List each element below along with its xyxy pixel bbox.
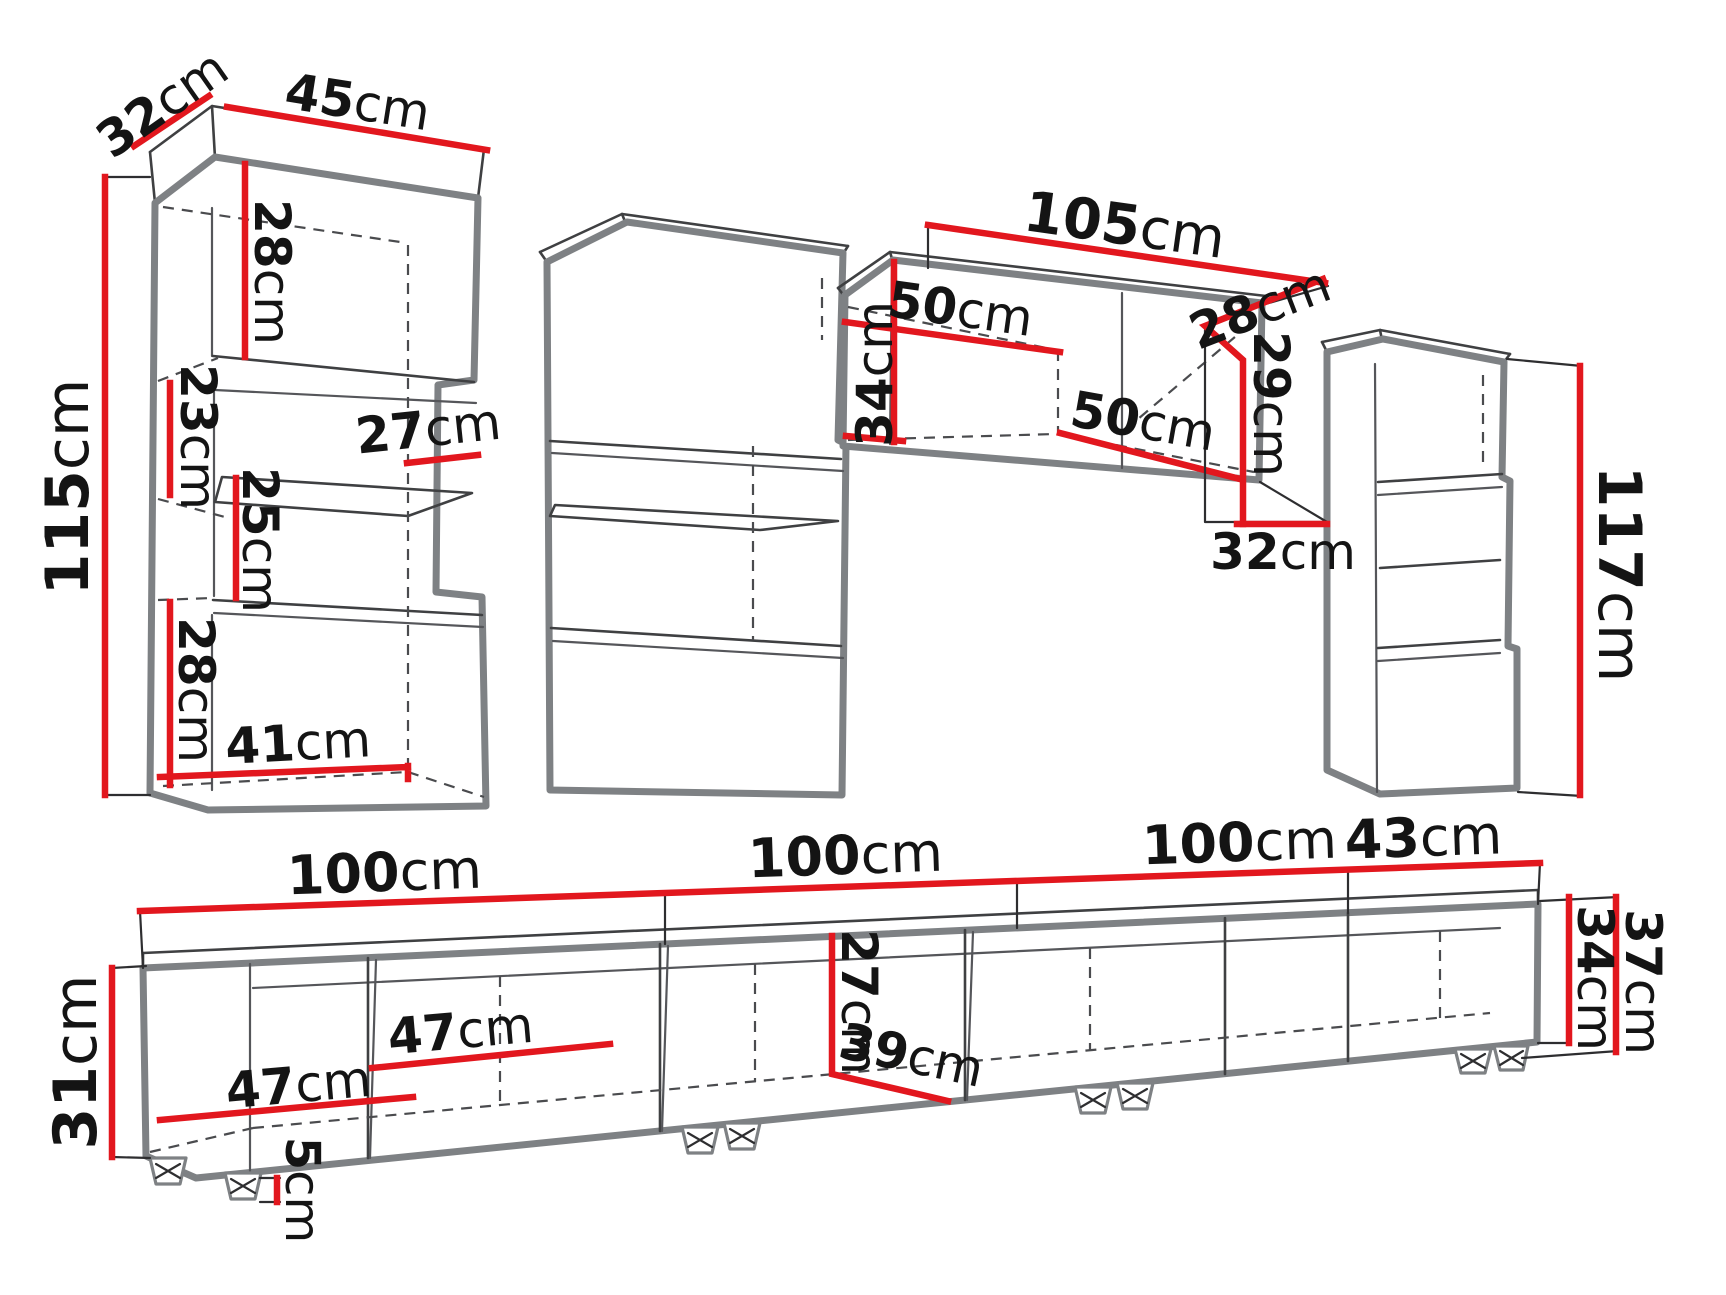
dim-label-tv-stand-right-total-height: 37cm [1614, 909, 1672, 1055]
dim-label-tv-stand-module-2: 100cm [747, 821, 944, 891]
dim-label-left-cabinet-upper-gap: 23cm [169, 364, 227, 510]
dim-label-left-cabinet-width: 45cm [281, 62, 434, 142]
dim-label-left-cabinet-shelf-gap: 25cm [231, 467, 289, 613]
dimensions-right-cabinet: 117cm [1507, 359, 1654, 796]
dim-label-wall-cabinet-front-height: 34cm [846, 301, 904, 447]
furniture-dimension-diagram: 32cm 45cm 115cm 28cm 23cm 27cm 25cm 28cm… [0, 0, 1726, 1295]
dim-label-left-cabinet-bottom-section: 28cm [167, 617, 225, 763]
diagram-canvas: 32cm 45cm 115cm 28cm 23cm 27cm 25cm 28cm… [0, 0, 1726, 1295]
dim-label-tv-stand-module-3: 100cm [1141, 808, 1338, 878]
dim-label-wall-cabinet-width: 105cm [1020, 179, 1229, 272]
dim-label-tv-stand-module-4: 43cm [1344, 803, 1504, 871]
middle-tall-cabinet [540, 214, 848, 795]
dim-label-left-cabinet-height: 115cm [33, 379, 103, 596]
dim-label-left-cabinet-inner-width: 41cm [224, 710, 373, 776]
dim-label-left-cabinet-top-section: 28cm [243, 199, 301, 345]
dim-label-wall-cabinet-end-depth: 32cm [1210, 523, 1356, 581]
dim-label-tv-stand-module-1: 100cm [286, 838, 483, 908]
dim-label-tv-stand-left-height: 31cm [41, 975, 111, 1150]
dim-label-right-cabinet-height: 117cm [1584, 466, 1654, 683]
dim-label-wall-cabinet-end-height: 29cm [1242, 331, 1300, 477]
dim-label-tv-stand-leg-height: 5cm [274, 1137, 330, 1244]
